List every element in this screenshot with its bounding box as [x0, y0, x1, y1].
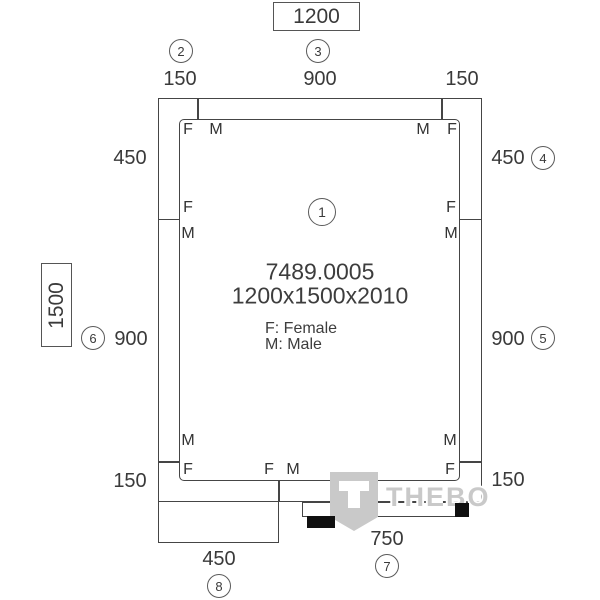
- thebo-logo-shield: [330, 472, 378, 532]
- balloon-8-bottom-panel: 8: [207, 574, 231, 598]
- total-height-value: 1500: [46, 282, 67, 329]
- panel-joint-left-lower: [158, 461, 179, 463]
- technical-drawing-canvas: THEBO 1200 1500 1 2 3 4 5 6 7 8 150 900 …: [0, 0, 600, 600]
- dim-top-left-150: 150: [163, 69, 196, 89]
- dim-bottom-panel-450: 450: [202, 549, 235, 569]
- connector-bottom-mid-f: F: [264, 462, 274, 478]
- legend-male: M: Male: [265, 337, 322, 353]
- dim-left-mid-900: 900: [114, 329, 147, 349]
- balloon-5-right-mid-panel: 5: [531, 326, 555, 350]
- dim-left-lower-150: 150: [113, 471, 146, 491]
- panel-joint-right-lower: [460, 461, 482, 463]
- balloon-7-door-panel: 7: [375, 554, 399, 578]
- connector-right-lower-f: F: [445, 462, 455, 478]
- total-height-dimension-box: 1500: [41, 263, 72, 347]
- legend-female: F: Female: [265, 321, 337, 337]
- connector-left-lower-m: M: [181, 433, 194, 449]
- connector-top-right-m: M: [416, 122, 429, 138]
- dim-right-upper-450: 450: [491, 148, 524, 168]
- dim-top-middle-900: 900: [303, 69, 336, 89]
- door-handle-black: [307, 516, 335, 528]
- balloon-2-top-left-panel: 2: [169, 39, 193, 63]
- dim-door-750: 750: [370, 529, 403, 549]
- door-hinge-black: [455, 503, 469, 517]
- bottom-extension-panel: [158, 501, 279, 543]
- panel-joint-right-upper: [460, 219, 482, 221]
- balloon-3-top-panel: 3: [306, 39, 330, 63]
- total-width-value: 1200: [293, 6, 340, 27]
- dim-left-upper-450: 450: [113, 148, 146, 168]
- connector-bottom-mid-m: M: [286, 462, 299, 478]
- panel-joint-left-upper: [158, 219, 179, 221]
- connector-left-upper-f: F: [183, 200, 193, 216]
- connector-right-upper-f: F: [446, 200, 456, 216]
- balloon-1-room: 1: [308, 198, 336, 226]
- connector-top-right-f: F: [447, 122, 457, 138]
- connector-left-lower-f: F: [183, 462, 193, 478]
- dim-top-right-150: 150: [445, 69, 478, 89]
- connector-right-lower-m: M: [443, 433, 456, 449]
- panel-joint-bottom: [278, 481, 280, 502]
- connector-top-left-m: M: [209, 122, 222, 138]
- dim-right-lower-150: 150: [491, 470, 524, 490]
- connector-left-upper-m: M: [181, 226, 194, 242]
- connector-right-upper-m: M: [444, 226, 457, 242]
- dim-right-mid-900: 900: [491, 329, 524, 349]
- article-number: 7489.0005: [266, 261, 375, 284]
- total-width-dimension-box: 1200: [273, 2, 360, 31]
- connector-top-left-f: F: [183, 122, 193, 138]
- thebo-logo-wordmark: THEBO: [386, 484, 491, 511]
- balloon-6-left-mid-panel: 6: [81, 326, 105, 350]
- product-size: 1200x1500x2010: [232, 285, 409, 308]
- balloon-4-right-upper-panel: 4: [531, 146, 555, 170]
- panel-joint-top-right: [441, 98, 443, 120]
- panel-joint-top-left: [197, 98, 199, 120]
